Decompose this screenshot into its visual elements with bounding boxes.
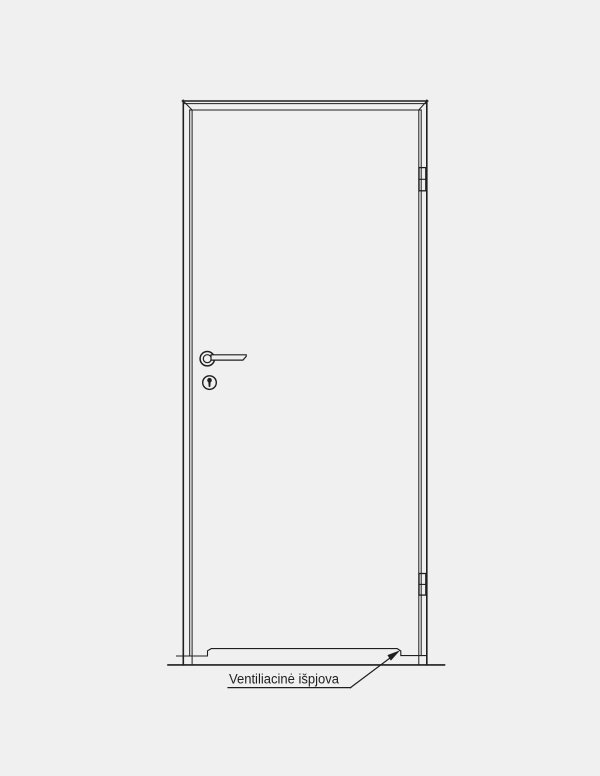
keyhole-cylinder-stem	[208, 382, 210, 387]
door-linework	[168, 100, 445, 687]
hinge-top	[419, 168, 426, 191]
ventilation-cutout-label: Ventiliacinė išpjova	[229, 672, 339, 688]
handle-lever-bar	[211, 355, 246, 360]
frame-mitre-top-right	[419, 101, 427, 110]
handle-spindle-circle	[203, 355, 211, 363]
door-drawing-canvas: Ventiliacinė išpjova	[0, 0, 600, 776]
leader-diagonal-line	[351, 655, 395, 688]
door-handle	[200, 352, 246, 366]
frame-mitre-top-left	[183, 101, 192, 110]
hinge-bottom	[419, 574, 426, 596]
door-technical-drawing: Ventiliacinė išpjova	[0, 0, 600, 776]
door-filled-shapes	[207, 378, 400, 661]
